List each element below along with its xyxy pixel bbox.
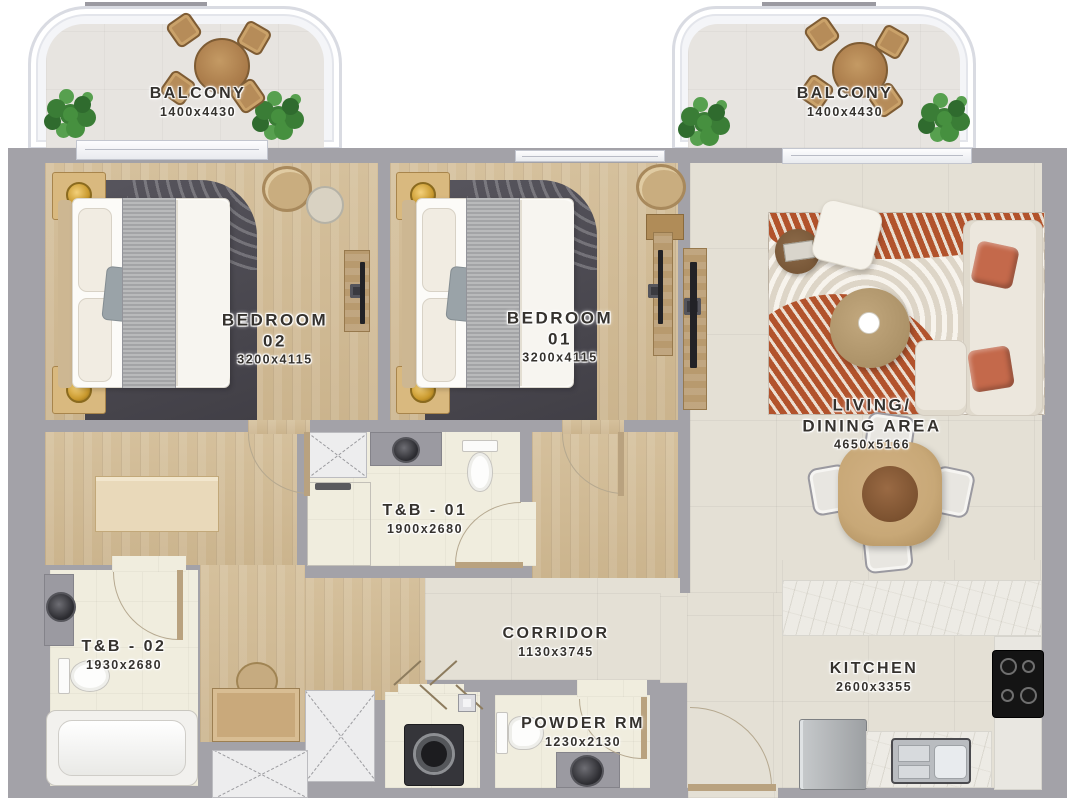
toilet-tank: [462, 440, 498, 452]
bed-headboard: [402, 200, 416, 388]
door-panel-line: [791, 155, 964, 156]
closet: [305, 690, 375, 782]
door-leaf: [177, 570, 183, 640]
shower-stall: [307, 482, 371, 566]
sink-compartment: [898, 765, 930, 779]
tv-icon: [690, 262, 697, 368]
balcony-chair: [165, 11, 204, 50]
toilet-icon: [467, 452, 493, 492]
shower-head-icon: [315, 483, 351, 490]
washer-drum: [413, 733, 455, 775]
tb-02-label: T&B - 02 1930x2680: [82, 636, 167, 674]
balcony-chair: [803, 15, 842, 54]
room-name: DINING AREA: [802, 416, 941, 437]
tv-icon: [658, 250, 663, 324]
throw-pillow: [967, 345, 1015, 393]
door-leaf: [304, 432, 310, 496]
washbasin-icon: [392, 437, 420, 463]
room-dims: 1400x4430: [150, 104, 247, 121]
room-name: T&B - 02: [82, 636, 167, 657]
closet: [212, 750, 308, 798]
bed-headboard: [58, 200, 72, 388]
room-name: POWDER RM: [521, 713, 645, 734]
cooktop-icon: [992, 650, 1044, 718]
toilet-tank: [496, 712, 508, 754]
door-opening: [562, 420, 624, 434]
console-table: [212, 688, 300, 742]
room-name: KITCHEN: [830, 658, 919, 679]
room-dims: 3200x4115: [507, 350, 613, 367]
room-dims: 1930x2680: [82, 657, 167, 674]
door-opening: [577, 680, 647, 697]
bedroom-01-label: BEDROOM 01 3200x4115: [507, 308, 613, 367]
door-leaf: [618, 432, 624, 496]
burner-icon: [1020, 687, 1037, 704]
door-panel-line: [85, 149, 260, 150]
shower-tray: [307, 432, 367, 478]
window: [515, 150, 665, 162]
balcony-right-label: BALCONY 1400x4430: [797, 83, 894, 121]
sliding-door: [782, 148, 972, 164]
hallway-floor: [305, 578, 427, 700]
corridor-floor: [660, 593, 690, 683]
sink-compartment: [898, 745, 930, 762]
burner-icon: [1000, 658, 1017, 675]
throw-pillow: [970, 240, 1020, 290]
door-opening: [112, 556, 186, 572]
tb-01-label: T&B - 01 1900x2680: [383, 500, 468, 538]
door-leaf: [455, 562, 523, 568]
wardrobe: [95, 476, 219, 532]
bed-runner: [122, 198, 176, 388]
burner-icon: [1022, 660, 1035, 673]
room-dims: 1230x2130: [521, 734, 645, 751]
washbasin-icon: [570, 755, 604, 787]
dining-table-center: [862, 466, 918, 522]
toilet-tank: [58, 658, 70, 694]
armchair: [262, 166, 312, 212]
corridor-label: CORRIDOR 1130x3745: [502, 623, 609, 661]
kitchen-counter: [782, 580, 1042, 636]
bedroom-02-label: BEDROOM 02 3200x4115: [222, 310, 328, 369]
armchair: [636, 164, 686, 210]
washbasin-icon: [46, 592, 76, 622]
kitchen-label: KITCHEN 2600x3355: [830, 658, 919, 696]
room-dims: 2600x3355: [830, 679, 919, 696]
side-table: [306, 186, 344, 224]
entrance-door-leaf: [688, 784, 776, 791]
room-number: 01: [507, 329, 613, 350]
window-line: [522, 156, 658, 157]
room-dims: 1130x3745: [502, 644, 609, 661]
room-name: BALCONY: [150, 83, 247, 104]
room-name: CORRIDOR: [502, 623, 609, 644]
room-name: BALCONY: [797, 83, 894, 104]
tv-icon: [360, 262, 365, 324]
room-dims: 1900x2680: [383, 521, 468, 538]
sink-bowl: [934, 745, 967, 779]
powder-rm-label: POWDER RM 1230x2130: [521, 713, 645, 751]
balcony-left-label: BALCONY 1400x4430: [150, 83, 247, 121]
room-dims: 4650x5166: [802, 437, 941, 454]
sliding-door: [76, 140, 268, 160]
utility-box: [458, 694, 476, 712]
kitchen-sink: [891, 738, 971, 784]
room-dims: 3200x4115: [222, 352, 328, 369]
refrigerator: [799, 719, 867, 790]
door-opening: [248, 420, 310, 434]
room-name: T&B - 01: [383, 500, 468, 521]
floor-plan: BALCONY 1400x4430 BALCONY 1400x4430: [0, 0, 1075, 807]
room-dims: 1400x4430: [797, 104, 894, 121]
bathtub-basin: [58, 720, 186, 776]
room-name: LIVING/: [802, 395, 941, 416]
burner-icon: [1001, 689, 1014, 702]
room-name: BEDROOM: [222, 310, 328, 331]
cup-icon: [858, 312, 880, 334]
living-dining-label: LIVING/ DINING AREA 4650x5166: [802, 395, 941, 454]
room-number: 02: [222, 331, 328, 352]
room-name: BEDROOM: [507, 308, 613, 329]
